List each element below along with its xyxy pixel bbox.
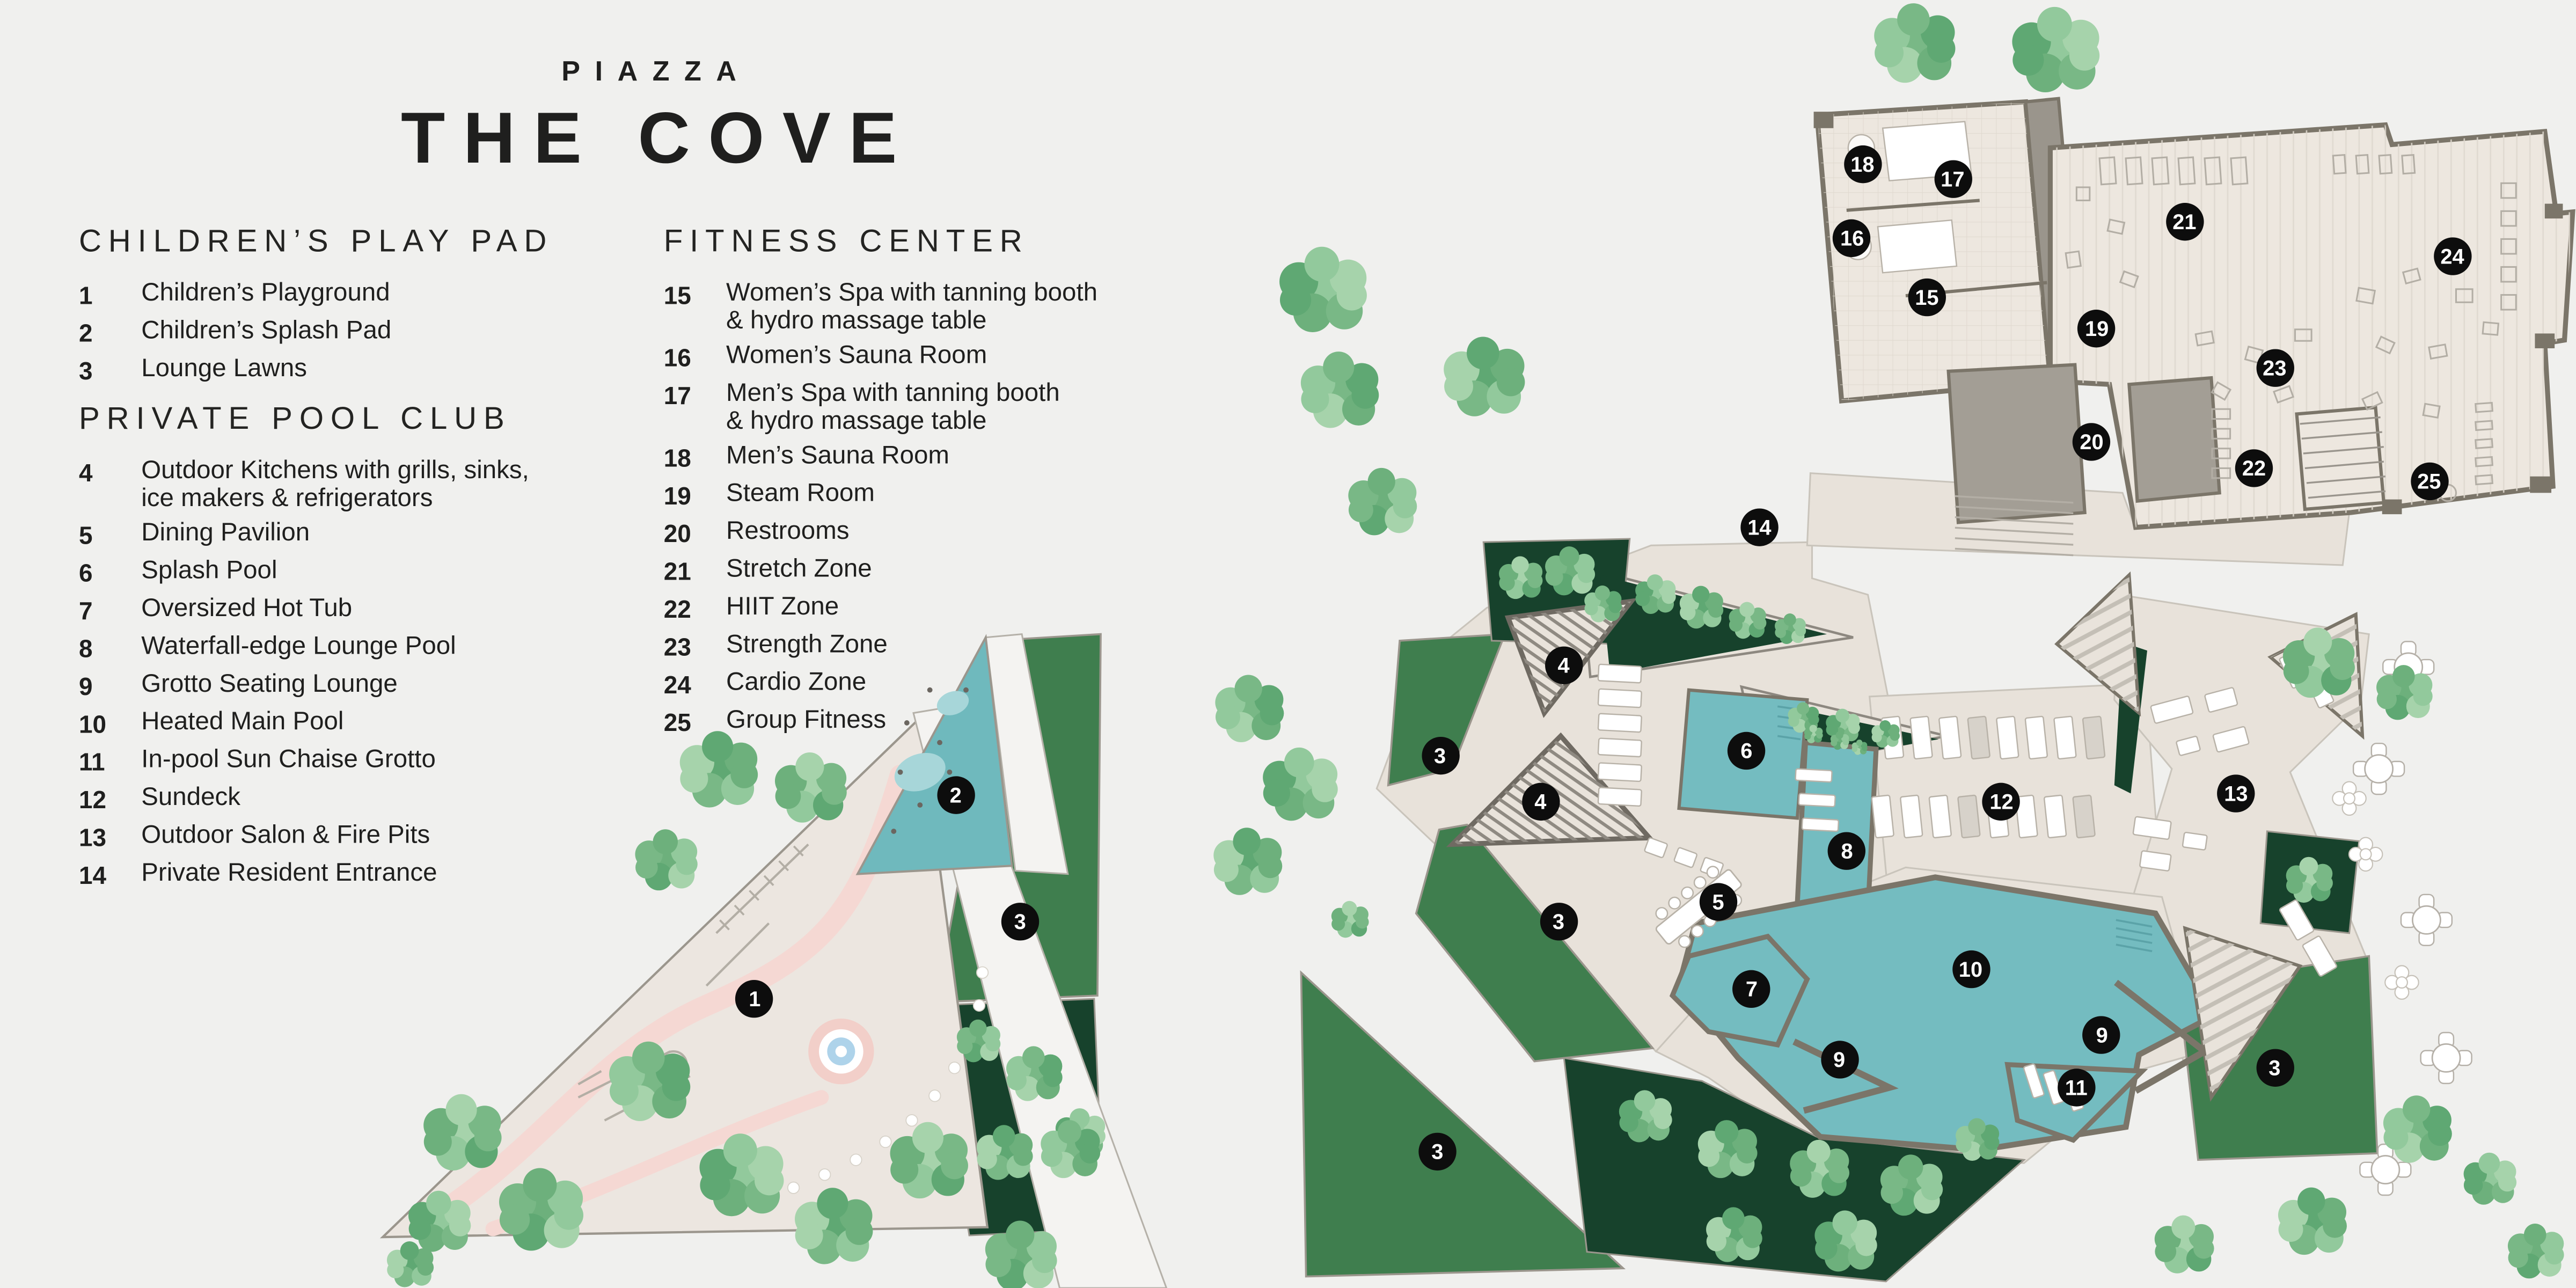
legend-item-number: 9: [79, 672, 141, 701]
legend-item-number: 8: [79, 634, 141, 664]
legend-item-number: 5: [79, 521, 141, 550]
legend-item-17: 17Men’s Spa with tanning booth & hydro m…: [664, 381, 1206, 435]
legend-item-10: 10Heated Main Pool: [79, 709, 646, 739]
legend-item-label: Women’s Spa with tanning booth & hydro m…: [726, 281, 1097, 335]
legend-item-24: 24Cardio Zone: [664, 670, 1206, 700]
legend-item-number: 14: [79, 861, 141, 890]
legend-item-number: 11: [79, 748, 141, 777]
legend-item-label: HIIT Zone: [726, 595, 839, 624]
title-block: PIAZZA THE COVE: [156, 56, 1142, 181]
legend-item-label: Stretch Zone: [726, 557, 872, 587]
legend-item-label: Cardio Zone: [726, 670, 866, 700]
legend-section-private-pool-club: PRIVATE POOL CLUB 4Outdoor Kitchens with…: [79, 402, 646, 898]
legend-item-label: Restrooms: [726, 519, 849, 548]
legend-item-9: 9Grotto Seating Lounge: [79, 672, 646, 701]
legend-item-number: 20: [664, 519, 726, 548]
legend-item-22: 22HIIT Zone: [664, 595, 1206, 624]
legend-item-label: Group Fitness: [726, 708, 886, 737]
legend-item-label: Steam Room: [726, 481, 875, 511]
legend-item-1: 1Children’s Playground: [79, 281, 638, 310]
legend-item-label: Oversized Hot Tub: [141, 596, 352, 626]
legend-item-number: 10: [79, 709, 141, 739]
legend-item-number: 25: [664, 708, 726, 737]
legend-item-5: 5Dining Pavilion: [79, 521, 646, 550]
title-eyebrow: PIAZZA: [156, 56, 1142, 89]
legend-item-label: Dining Pavilion: [141, 521, 310, 550]
legend-item-16: 16Women’s Sauna Room: [664, 343, 1206, 373]
legend-item-18: 18Men’s Sauna Room: [664, 444, 1206, 473]
legend-item-number: 3: [79, 356, 141, 386]
legend-item-2: 2Children’s Splash Pad: [79, 319, 638, 348]
legend-item-11: 11In-pool Sun Chaise Grotto: [79, 748, 646, 777]
legend-item-label: Children’s Playground: [141, 281, 390, 310]
legend-item-20: 20Restrooms: [664, 519, 1206, 548]
legend-item-label: Waterfall-edge Lounge Pool: [141, 634, 456, 664]
legend-section-fitness-center: FITNESS CENTER 15Women’s Spa with tannin…: [664, 225, 1206, 745]
legend-item-number: 22: [664, 595, 726, 624]
legend-heading: PRIVATE POOL CLUB: [79, 402, 646, 438]
legend-item-number: 16: [664, 343, 726, 373]
legend-heading: CHILDREN’S PLAY PAD: [79, 225, 638, 261]
legend-item-number: 2: [79, 319, 141, 348]
legend-item-3: 3Lounge Lawns: [79, 356, 638, 386]
legend-item-label: Children’s Splash Pad: [141, 319, 391, 348]
legend-item-label: Private Resident Entrance: [141, 861, 437, 890]
legend-item-19: 19Steam Room: [664, 481, 1206, 511]
legend-item-label: Splash Pool: [141, 559, 277, 588]
legend-item-number: 7: [79, 596, 141, 626]
legend-item-25: 25Group Fitness: [664, 708, 1206, 737]
legend-item-14: 14Private Resident Entrance: [79, 861, 646, 890]
legend-item-number: 6: [79, 559, 141, 588]
legend-item-4: 4Outdoor Kitchens with grills, sinks, ic…: [79, 458, 646, 513]
legend-item-label: Men’s Sauna Room: [726, 444, 949, 473]
legend-item-label: Sundeck: [141, 785, 240, 815]
legend-item-number: 18: [664, 444, 726, 473]
legend-item-number: 4: [79, 458, 141, 513]
site-plan-poster: PIAZZA THE COVE CHILDREN’S PLAY PAD 1Chi…: [0, 0, 2576, 1288]
legend-item-label: Outdoor Salon & Fire Pits: [141, 823, 430, 853]
legend-item-23: 23Strength Zone: [664, 633, 1206, 662]
legend-item-label: Outdoor Kitchens with grills, sinks, ice…: [141, 458, 529, 513]
legend-heading: FITNESS CENTER: [664, 225, 1206, 261]
legend-item-number: 23: [664, 633, 726, 662]
legend-item-label: Heated Main Pool: [141, 709, 343, 739]
legend-item-7: 7Oversized Hot Tub: [79, 596, 646, 626]
legend-item-number: 24: [664, 670, 726, 700]
legend-item-6: 6Splash Pool: [79, 559, 646, 588]
legend-item-13: 13Outdoor Salon & Fire Pits: [79, 823, 646, 853]
legend-item-number: 21: [664, 557, 726, 587]
legend-item-label: Lounge Lawns: [141, 356, 307, 386]
page-title: THE COVE: [156, 99, 1142, 181]
legend-item-21: 21Stretch Zone: [664, 557, 1206, 587]
legend-item-8: 8Waterfall-edge Lounge Pool: [79, 634, 646, 664]
legend-item-label: In-pool Sun Chaise Grotto: [141, 748, 436, 777]
legend-item-number: 13: [79, 823, 141, 853]
legend-item-number: 1: [79, 281, 141, 310]
legend-item-number: 17: [664, 381, 726, 435]
legend-item-15: 15Women’s Spa with tanning booth & hydro…: [664, 281, 1206, 335]
legend-item-label: Strength Zone: [726, 633, 888, 662]
legend-item-label: Men’s Spa with tanning booth & hydro mas…: [726, 381, 1060, 435]
legend-section-childrens-play-pad: CHILDREN’S PLAY PAD 1Children’s Playgrou…: [79, 225, 638, 394]
legend-item-label: Women’s Sauna Room: [726, 343, 987, 373]
legend-item-label: Grotto Seating Lounge: [141, 672, 397, 701]
legend-item-number: 19: [664, 481, 726, 511]
legend-item-number: 15: [664, 281, 726, 335]
legend-item-number: 12: [79, 785, 141, 815]
legend-item-12: 12Sundeck: [79, 785, 646, 815]
